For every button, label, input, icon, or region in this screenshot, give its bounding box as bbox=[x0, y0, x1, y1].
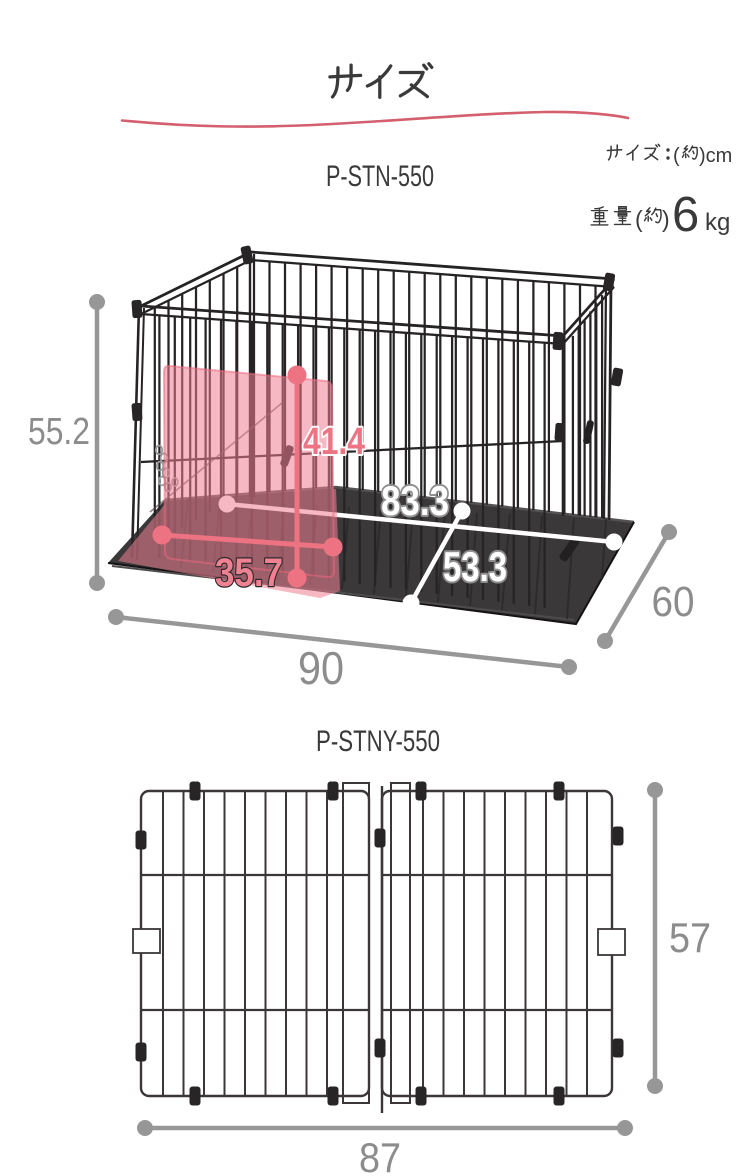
svg-text:): ) bbox=[662, 206, 670, 232]
svg-text:57: 57 bbox=[669, 914, 711, 961]
svg-text:P-STN-550: P-STN-550 bbox=[326, 160, 434, 193]
svg-text:87: 87 bbox=[359, 1134, 401, 1176]
svg-text:(: ( bbox=[635, 206, 643, 232]
svg-text:35.7: 35.7 bbox=[215, 551, 283, 595]
svg-text:55.2: 55.2 bbox=[28, 411, 90, 453]
svg-text:83.3: 83.3 bbox=[381, 477, 449, 524]
svg-text:60: 60 bbox=[652, 578, 695, 626]
svg-text:kg: kg bbox=[705, 209, 730, 236]
svg-text:90: 90 bbox=[298, 642, 344, 694]
svg-text:)cm: )cm bbox=[699, 145, 732, 167]
svg-text:6: 6 bbox=[672, 188, 699, 242]
svg-text:53.3: 53.3 bbox=[443, 543, 507, 590]
svg-text:P-STNY-550: P-STNY-550 bbox=[316, 725, 440, 758]
svg-text:(: ( bbox=[673, 145, 680, 167]
svg-text:41.4: 41.4 bbox=[303, 421, 365, 463]
